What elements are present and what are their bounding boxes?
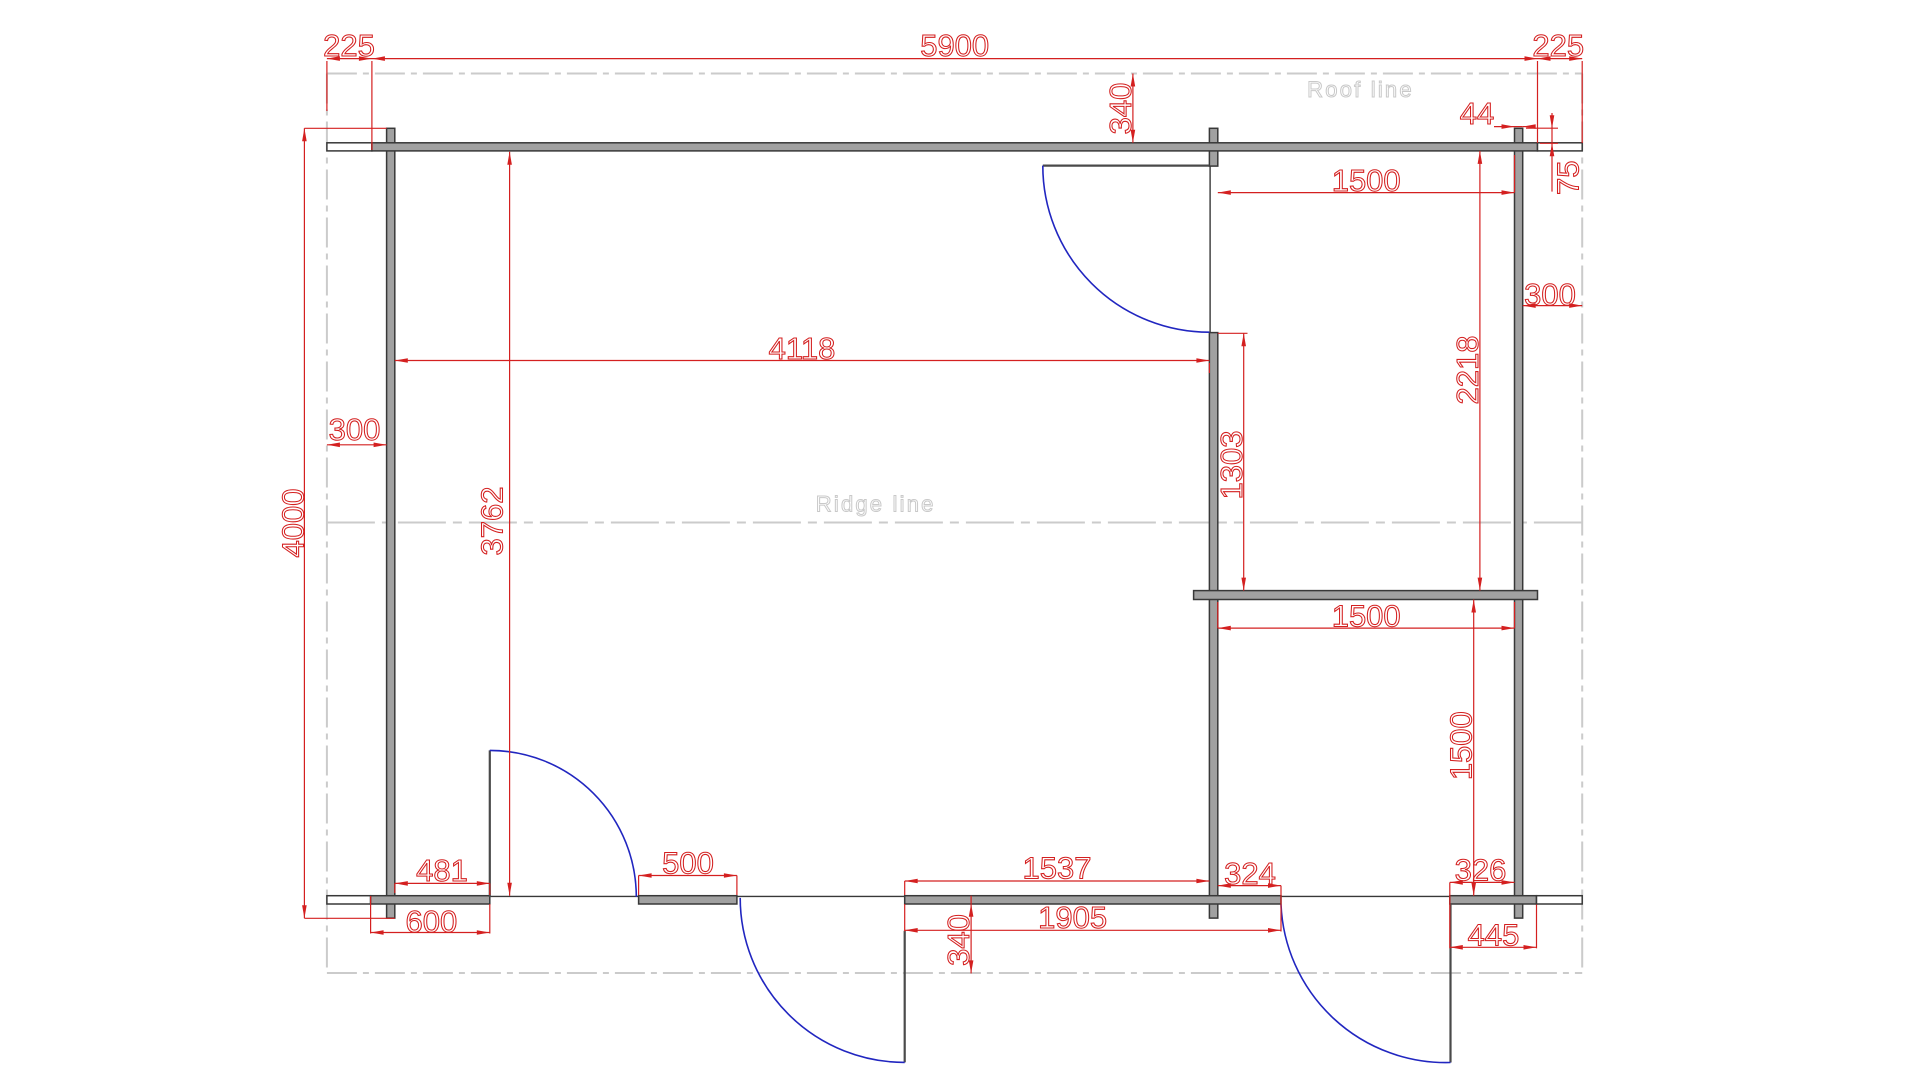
svg-text:4118: 4118 (769, 331, 836, 366)
svg-text:Roof line: Roof line (1307, 77, 1414, 102)
svg-text:3762: 3762 (475, 487, 510, 556)
svg-text:1500: 1500 (1444, 711, 1479, 780)
svg-text:44: 44 (1460, 96, 1494, 131)
svg-text:1500: 1500 (1332, 163, 1401, 198)
svg-text:340: 340 (1103, 83, 1138, 135)
svg-text:225: 225 (1532, 28, 1584, 63)
svg-text:5900: 5900 (920, 28, 989, 63)
svg-text:1537: 1537 (1023, 851, 1092, 886)
svg-text:445: 445 (1468, 918, 1520, 953)
svg-text:340: 340 (941, 914, 976, 966)
svg-text:2218: 2218 (1450, 336, 1485, 405)
svg-text:326: 326 (1455, 853, 1507, 888)
svg-text:4000: 4000 (276, 489, 311, 558)
svg-text:481: 481 (416, 853, 468, 888)
svg-text:324: 324 (1224, 856, 1276, 891)
svg-text:600: 600 (406, 904, 458, 939)
svg-text:1905: 1905 (1038, 900, 1107, 935)
svg-text:500: 500 (662, 846, 714, 881)
svg-text:75: 75 (1551, 161, 1586, 195)
svg-text:225: 225 (323, 28, 375, 63)
svg-text:1303: 1303 (1214, 431, 1249, 500)
svg-text:300: 300 (329, 412, 381, 447)
svg-text:Ridge line: Ridge line (816, 492, 936, 517)
svg-text:300: 300 (1524, 277, 1576, 312)
svg-text:1500: 1500 (1332, 599, 1401, 634)
